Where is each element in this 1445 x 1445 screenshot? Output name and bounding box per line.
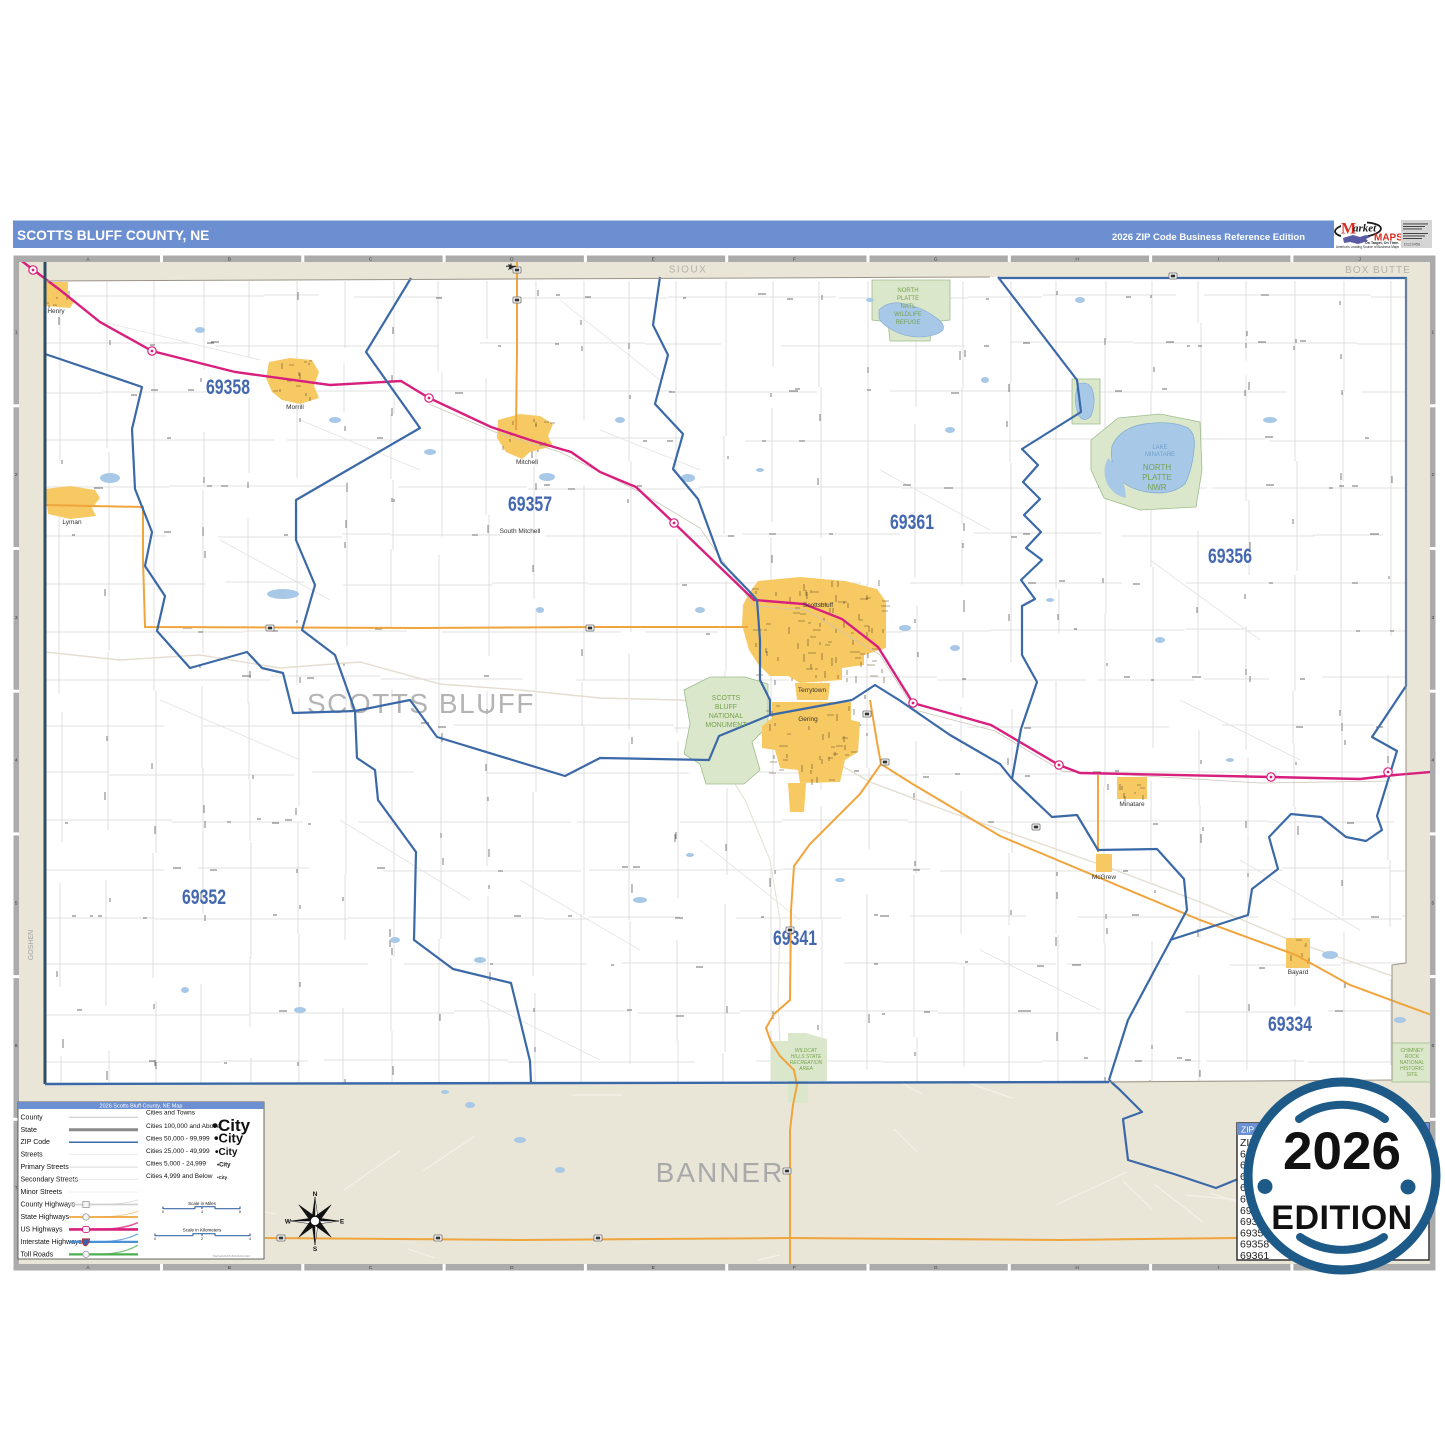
svg-text:1: 1	[15, 330, 18, 336]
svg-text:McGrew: McGrew	[1092, 874, 1117, 881]
svg-text:D: D	[510, 1265, 514, 1271]
svg-text:NORTH: NORTH	[897, 288, 918, 294]
svg-text:Bayard: Bayard	[1288, 969, 1309, 976]
svg-text:G: G	[934, 1265, 938, 1271]
svg-text:Mitchell: Mitchell	[516, 459, 539, 466]
svg-text:MINATARE: MINATARE	[1145, 452, 1175, 458]
svg-text:SITE: SITE	[1406, 1072, 1418, 1078]
svg-text:Scale in Miles: Scale in Miles	[188, 1201, 217, 1206]
svg-text:State: State	[21, 1127, 37, 1134]
svg-text:3: 3	[1431, 615, 1434, 621]
svg-text:W: W	[285, 1219, 292, 1226]
svg-text:ZIP Code: ZIP Code	[21, 1139, 51, 1146]
svg-text:Cities 100,000 and Above: Cities 100,000 and Above	[146, 1123, 220, 1130]
svg-text:•City: •City	[217, 1163, 231, 1169]
svg-text:•City: •City	[215, 1147, 238, 1158]
svg-text:69334: 69334	[1268, 1013, 1312, 1036]
svg-text:Streets: Streets	[21, 1152, 44, 1159]
svg-text:Terrytown: Terrytown	[798, 687, 827, 694]
svg-text:Cities 50,000 - 99,999: Cities 50,000 - 99,999	[146, 1136, 210, 1143]
svg-text:H: H	[1075, 256, 1079, 262]
svg-text:America's Leading Source of Bu: America's Leading Source of Business Map…	[1336, 245, 1400, 249]
svg-text:2: 2	[1431, 472, 1434, 478]
svg-text:I: I	[1218, 1265, 1219, 1271]
svg-text:69341: 69341	[773, 927, 817, 950]
svg-text:NORTH: NORTH	[1143, 463, 1172, 472]
svg-text:E: E	[652, 256, 655, 262]
svg-text:69356: 69356	[1208, 545, 1252, 568]
svg-text:E: E	[340, 1219, 345, 1226]
svg-text:0: 0	[162, 1210, 164, 1214]
svg-text:Primary Streets: Primary Streets	[21, 1164, 70, 1171]
svg-text:8: 8	[239, 1210, 241, 1214]
svg-text:Cities 25,000 - 49,999: Cities 25,000 - 49,999	[146, 1148, 210, 1155]
svg-text:Henry: Henry	[47, 308, 65, 315]
svg-text:State Highways: State Highways	[21, 1214, 70, 1221]
svg-text:PLATTE: PLATTE	[1142, 473, 1172, 482]
svg-text:LAKE: LAKE	[1152, 445, 1167, 451]
svg-text:Lyman: Lyman	[62, 519, 82, 526]
svg-text:B: B	[228, 1265, 231, 1271]
svg-text:NWR: NWR	[1147, 483, 1166, 492]
svg-text:H: H	[1075, 1265, 1079, 1271]
svg-text:4: 4	[15, 758, 18, 764]
svg-text:69358: 69358	[206, 376, 250, 399]
svg-text:69358: 69358	[1240, 1239, 1269, 1251]
svg-text:AREA: AREA	[798, 1066, 813, 1072]
svg-text:F: F	[793, 1265, 796, 1271]
svg-text:G: G	[934, 256, 938, 262]
svg-text:B: B	[228, 256, 231, 262]
svg-text:NATL: NATL	[901, 304, 917, 310]
svg-text:US Highways: US Highways	[21, 1226, 64, 1233]
svg-text:4: 4	[249, 1237, 251, 1241]
svg-text:S: S	[313, 1246, 318, 1253]
svg-text:•City: •City	[217, 1175, 228, 1180]
svg-text:2: 2	[201, 1237, 203, 1241]
svg-text:NATIONAL: NATIONAL	[709, 713, 744, 720]
svg-text:BANNER: BANNER	[656, 1157, 785, 1188]
svg-text:BOX BUTTE: BOX BUTTE	[1345, 265, 1411, 276]
svg-text:5: 5	[15, 900, 18, 906]
svg-text:Cities 5,000 - 24,999: Cities 5,000 - 24,999	[146, 1161, 206, 1168]
svg-text:SIOUX: SIOUX	[669, 265, 708, 276]
svg-text:•City: •City	[214, 1131, 244, 1146]
svg-text:I: I	[1218, 256, 1219, 262]
svg-text:EDITION: EDITION	[1271, 1199, 1412, 1237]
svg-text:Minor Streets: Minor Streets	[21, 1189, 63, 1196]
svg-text:Minatare: Minatare	[1119, 801, 1145, 808]
svg-text:PLATTE: PLATTE	[897, 296, 919, 302]
svg-text:69352: 69352	[182, 886, 226, 909]
svg-text:69357: 69357	[508, 493, 552, 516]
svg-text:Morrill: Morrill	[286, 404, 304, 411]
svg-text:3: 3	[15, 615, 18, 621]
svg-text:Cities and Towns: Cities and Towns	[146, 1110, 196, 1117]
svg-text:Gering: Gering	[798, 716, 818, 723]
svg-text:Scottsbluff: Scottsbluff	[803, 602, 833, 609]
svg-text:5: 5	[1431, 900, 1434, 906]
svg-text:Secondary Streets: Secondary Streets	[21, 1177, 79, 1184]
svg-text:Toll Roads: Toll Roads	[21, 1251, 54, 1258]
svg-text:2026 ZIP Code Business Referen: 2026 ZIP Code Business Reference Edition	[1112, 232, 1305, 243]
svg-text:SCOTTS BLUFF COUNTY, NE: SCOTTS BLUFF COUNTY, NE	[17, 228, 209, 243]
svg-text:7: 7	[15, 1186, 18, 1192]
svg-text:Scale in Kilometers: Scale in Kilometers	[183, 1228, 222, 1233]
svg-text:BLUFF: BLUFF	[715, 704, 737, 711]
svg-text:E: E	[652, 1265, 655, 1271]
svg-text:N: N	[313, 1191, 318, 1198]
svg-text:MarketMAPS 800-929-4110: MarketMAPS 800-929-4110	[213, 1254, 250, 1258]
svg-text:69361: 69361	[890, 511, 934, 534]
svg-text:2026: 2026	[1283, 1122, 1401, 1181]
svg-text:F: F	[793, 256, 796, 262]
svg-text:Cities 4,999 and Below: Cities 4,999 and Below	[146, 1173, 213, 1180]
svg-text:6: 6	[1431, 1043, 1434, 1049]
svg-text:WILDLIFE: WILDLIFE	[894, 312, 922, 318]
svg-text:MONUMENT: MONUMENT	[705, 722, 747, 729]
svg-text:69361: 69361	[1240, 1250, 1269, 1262]
svg-text:4: 4	[1431, 758, 1434, 764]
svg-text:D123456: D123456	[1404, 242, 1421, 247]
svg-text:1: 1	[1431, 330, 1434, 336]
svg-text:2: 2	[15, 472, 18, 478]
svg-text:C: C	[369, 256, 373, 262]
svg-text:County: County	[21, 1114, 44, 1121]
svg-text:County Highways: County Highways	[21, 1202, 76, 1209]
svg-text:C: C	[369, 1265, 373, 1271]
svg-text:GOSHEN: GOSHEN	[28, 930, 35, 960]
svg-text:South Mitchell: South Mitchell	[500, 528, 541, 535]
svg-text:REFUGE: REFUGE	[895, 320, 920, 326]
svg-text:6: 6	[15, 1043, 18, 1049]
svg-text:4: 4	[201, 1210, 203, 1214]
svg-text:D: D	[510, 256, 514, 262]
svg-text:0: 0	[154, 1237, 156, 1241]
svg-text:SCOTTS: SCOTTS	[712, 695, 741, 702]
